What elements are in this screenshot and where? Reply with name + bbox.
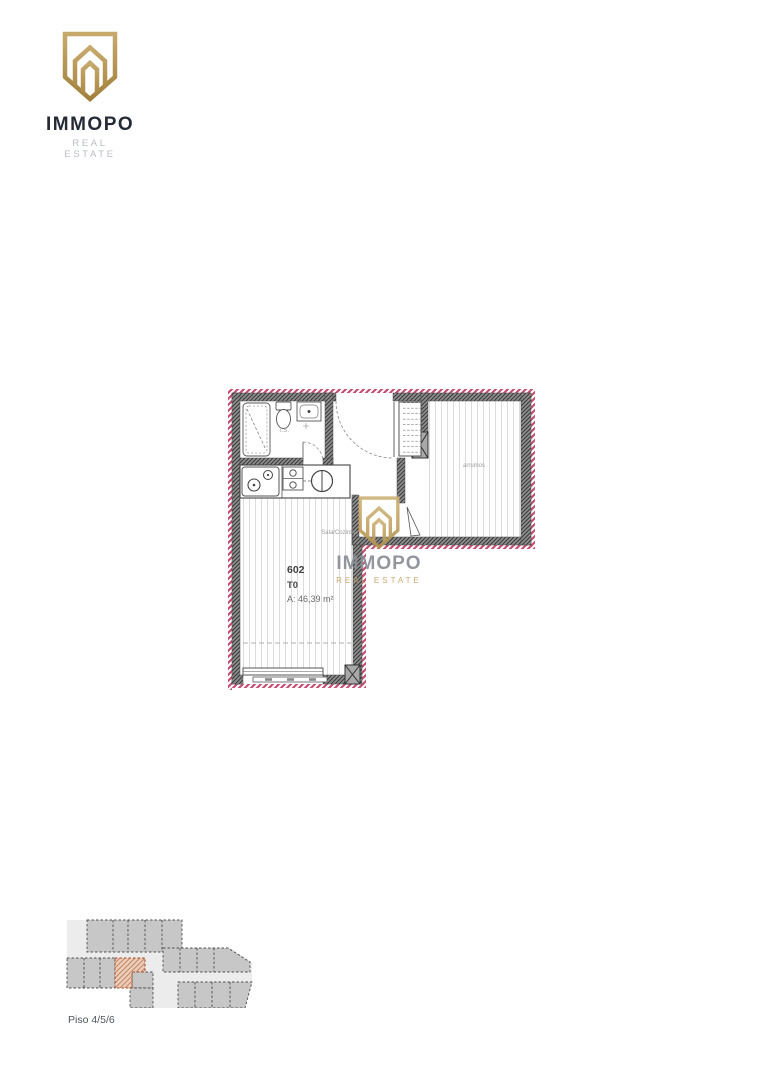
storage-room-floor (428, 401, 521, 537)
toilet-icon (276, 402, 291, 429)
drain-mark (303, 423, 309, 429)
column-window (345, 665, 360, 684)
kitchen-sink-icon (283, 467, 303, 490)
bathroom-label: I.S. (280, 428, 289, 434)
balcony-window (243, 668, 327, 682)
storage-door-leaf (407, 507, 420, 536)
brand-shield-icon (61, 30, 119, 103)
page: IMMOPO REAL ESTATE (0, 0, 763, 1080)
unit-area: A: 46,39 m² (287, 594, 334, 604)
brand-name: IMMOPO (46, 114, 134, 136)
header-logo: IMMOPO REAL ESTATE (46, 30, 134, 160)
kitchen-counter (240, 465, 350, 498)
unit-number: 602 (287, 564, 305, 576)
round-basin-icon (312, 471, 333, 492)
shower-icon (243, 403, 270, 456)
floor-plan-drawing: I.S. (225, 378, 545, 698)
bathroom-door-arc (303, 442, 323, 462)
floor-plan: I.S. (225, 378, 545, 698)
brand-tagline: REAL ESTATE (46, 138, 134, 160)
shaft (399, 402, 421, 456)
bathroom: I.S. (243, 402, 323, 462)
keyplan-caption: Piso 4/5/6 (68, 1014, 115, 1026)
key-plan-drawing (60, 908, 260, 1008)
unit-typology: T0 (287, 580, 298, 591)
living-kitchen-label: Sala/Cozinha (321, 530, 357, 536)
storage-label: arrumos (463, 463, 485, 469)
stove-icon (242, 467, 279, 496)
entrance-door (336, 401, 394, 458)
key-plan (60, 908, 260, 1013)
washbasin-icon (297, 402, 321, 421)
